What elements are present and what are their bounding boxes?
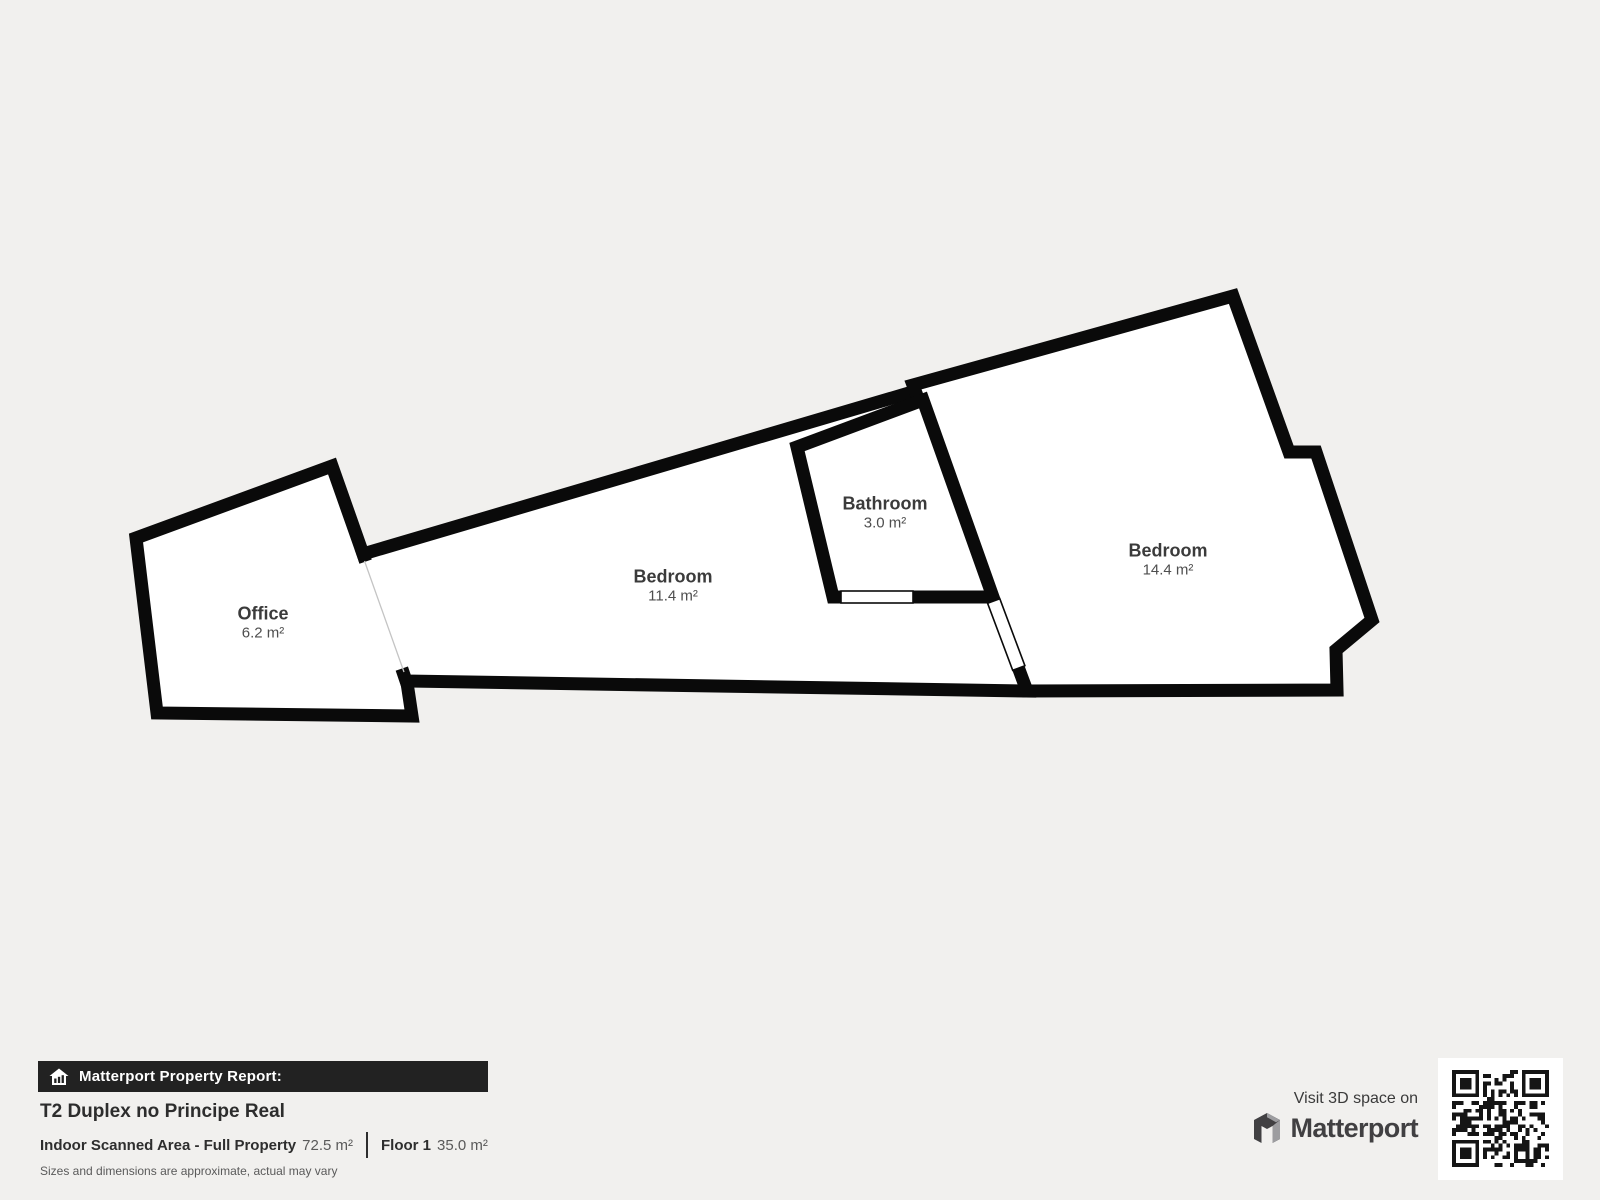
matterport-logo: Matterport	[1252, 1112, 1419, 1144]
property-title: T2 Duplex no Principe Real	[40, 1101, 285, 1123]
report-badge-bar: Matterport Property Report:	[38, 1061, 488, 1092]
report-stats-line: Indoor Scanned Area - Full Property 72.5…	[40, 1131, 488, 1159]
floor-plan	[0, 0, 1600, 1200]
disclaimer-text: Sizes and dimensions are approximate, ac…	[40, 1164, 337, 1178]
room-label-office: Office 6.2 m²	[237, 604, 288, 643]
house-report-icon	[49, 1068, 69, 1086]
room-name: Bathroom	[843, 494, 928, 514]
room-area: 14.4 m²	[1128, 561, 1207, 580]
room-name: Bedroom	[633, 567, 712, 587]
stats-divider	[366, 1132, 368, 1158]
visit-3d-text: Visit 3D space on	[1294, 1090, 1418, 1108]
qr-code-pattern	[1452, 1070, 1549, 1167]
qr-code	[1438, 1058, 1563, 1180]
scanned-area-value: 72.5 m²	[302, 1137, 353, 1154]
room-label-bathroom: Bathroom 3.0 m²	[843, 494, 928, 533]
room-area: 6.2 m²	[237, 624, 288, 643]
floor-value: 35.0 m²	[437, 1137, 488, 1154]
matterport-wordmark: Matterport	[1291, 1113, 1419, 1144]
room-area: 3.0 m²	[843, 514, 928, 533]
floor-label: Floor 1	[381, 1137, 431, 1154]
room-name: Bedroom	[1128, 541, 1207, 561]
scanned-area-label: Indoor Scanned Area - Full Property	[40, 1137, 296, 1154]
matterport-m-icon	[1252, 1112, 1282, 1144]
room-area: 11.4 m²	[633, 587, 712, 606]
room-label-bedroom-left: Bedroom 11.4 m²	[633, 567, 712, 606]
floorplan-report-page: Office 6.2 m² Bedroom 11.4 m² Bathroom 3…	[0, 0, 1600, 1200]
room-label-bedroom-right: Bedroom 14.4 m²	[1128, 541, 1207, 580]
bathroom-door	[841, 591, 913, 603]
room-name: Office	[237, 604, 288, 624]
report-badge-text: Matterport Property Report:	[79, 1068, 282, 1085]
